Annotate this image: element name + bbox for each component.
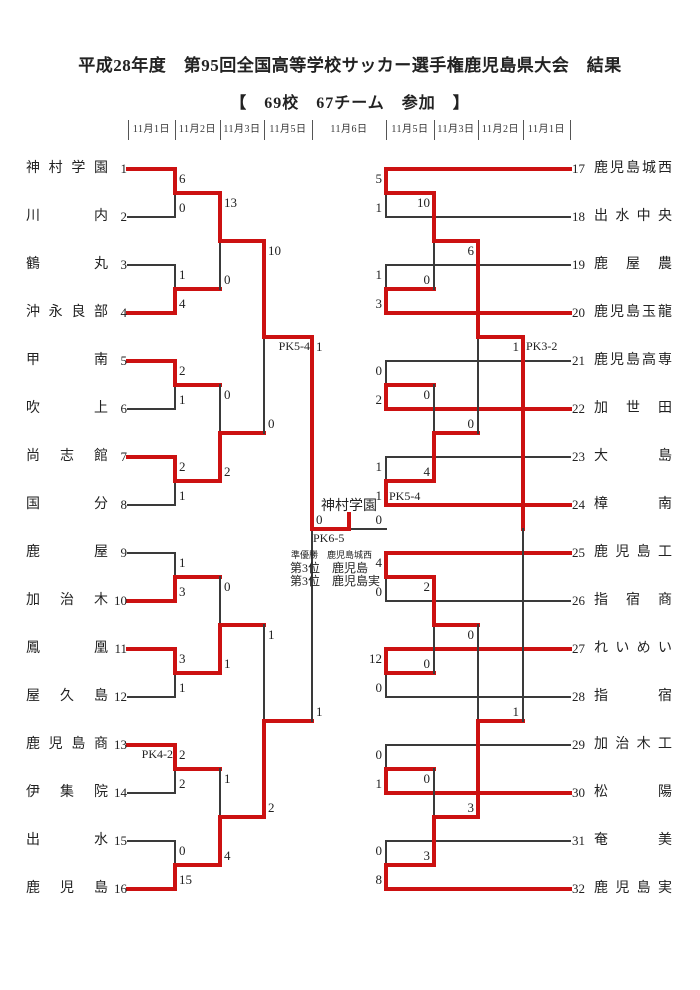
team-name: 鹿児島工 <box>594 544 672 562</box>
score-label: 12 <box>369 651 382 666</box>
team-name: 松陽 <box>594 784 672 802</box>
score-label: 1 <box>376 200 383 215</box>
team-seed: 25 <box>572 545 594 561</box>
score-label: 1 <box>224 656 231 671</box>
team-seed: 1 <box>106 161 127 177</box>
score-label: 1 <box>179 555 186 570</box>
team-name: 沖永良部 <box>26 304 108 322</box>
score-label: 2 <box>179 747 186 762</box>
runner-up-label: 準優勝 鹿児島城西 <box>291 550 372 561</box>
team-name: れいめい <box>594 640 672 658</box>
pk-score-note: PK6-5 <box>313 531 344 545</box>
team-seed: 31 <box>572 833 594 849</box>
team-seed: 21 <box>572 353 594 369</box>
team-name: 指宿商 <box>594 592 672 610</box>
team-name: 大島 <box>594 448 672 466</box>
team-name: 鹿児島玉龍 <box>594 304 672 322</box>
score-label: 3 <box>468 800 475 815</box>
score-label: 0 <box>376 512 383 527</box>
team-name: 鳳凰 <box>26 640 108 658</box>
score-label: 3 <box>179 651 186 666</box>
score-label: 1 <box>316 704 323 719</box>
score-label: 5 <box>376 171 383 186</box>
score-label: 0 <box>179 843 186 858</box>
score-label: 4 <box>179 296 186 311</box>
score-label: 1 <box>513 339 520 354</box>
score-label: 1 <box>179 267 186 282</box>
score-label: 2 <box>179 776 186 791</box>
team-seed: 29 <box>572 737 594 753</box>
team-seed: 8 <box>106 497 127 513</box>
team-seed: 28 <box>572 689 594 705</box>
score-label: 1 <box>268 627 275 642</box>
score-label: 0 <box>268 416 275 431</box>
score-label: 10 <box>417 195 430 210</box>
team-name: 鹿児島高専 <box>594 352 672 370</box>
team-seed: 11 <box>106 641 127 657</box>
score-label: 3 <box>179 584 186 599</box>
pk-score-note: PK4-2 <box>142 747 173 761</box>
score-label: 6 <box>468 243 475 258</box>
score-label: 2 <box>424 579 431 594</box>
score-label: 10 <box>268 243 281 258</box>
tournament-bracket-page: 平成28年度 第95回全国高等学校サッカー選手権鹿児島県大会 結果 【 69校 … <box>0 0 700 990</box>
team-seed: 12 <box>106 689 127 705</box>
score-label: 3 <box>376 296 383 311</box>
score-label: 0 <box>424 656 431 671</box>
score-label: 2 <box>179 459 186 474</box>
pk-score-note: PK3-2 <box>526 339 557 353</box>
score-label: 1 <box>376 776 383 791</box>
team-seed: 18 <box>572 209 594 225</box>
team-seed: 23 <box>572 449 594 465</box>
score-label: 13 <box>224 195 237 210</box>
team-name: 加世田 <box>594 400 672 418</box>
team-name: 神村学園 <box>26 160 108 178</box>
score-label: 1 <box>179 488 186 503</box>
score-label: 4 <box>376 555 383 570</box>
score-label: 4 <box>424 464 431 479</box>
team-name: 鶴丸 <box>26 256 108 274</box>
team-seed: 14 <box>106 785 127 801</box>
team-name: 樟南 <box>594 496 672 514</box>
score-label: 0 <box>224 579 231 594</box>
score-label: 1 <box>179 392 186 407</box>
team-name: 甲南 <box>26 352 108 370</box>
team-name: 加治木工 <box>594 736 672 754</box>
team-name: 加治木 <box>26 592 108 610</box>
score-label: 0 <box>376 843 383 858</box>
score-label: 0 <box>224 387 231 402</box>
team-seed: 19 <box>572 257 594 273</box>
score-label: 0 <box>424 272 431 287</box>
score-label: 0 <box>424 387 431 402</box>
team-name: 鹿児島城西 <box>594 160 672 178</box>
score-label: 6 <box>179 171 186 186</box>
team-seed: 24 <box>572 497 594 513</box>
score-label: 0 <box>424 771 431 786</box>
score-label: 1 <box>224 771 231 786</box>
team-name: 出水中央 <box>594 208 672 226</box>
team-name: 尚志館 <box>26 448 108 466</box>
team-seed: 32 <box>572 881 594 897</box>
score-label: 1 <box>179 680 186 695</box>
team-seed: 13 <box>106 737 127 753</box>
score-label: 1 <box>376 459 383 474</box>
score-label: 0 <box>376 747 383 762</box>
score-label: 3 <box>424 848 431 863</box>
team-name: 屋久島 <box>26 688 108 706</box>
team-seed: 3 <box>106 257 127 273</box>
team-seed: 9 <box>106 545 127 561</box>
score-label: 1 <box>513 704 520 719</box>
team-seed: 7 <box>106 449 127 465</box>
score-label: 0 <box>376 680 383 695</box>
team-seed: 16 <box>106 881 127 897</box>
pk-score-note: PK5-4 <box>279 339 310 353</box>
score-label: 0 <box>376 363 383 378</box>
score-label: 2 <box>376 392 383 407</box>
team-name: 国分 <box>26 496 108 514</box>
score-label: 0 <box>179 200 186 215</box>
team-seed: 2 <box>106 209 127 225</box>
team-seed: 4 <box>106 305 127 321</box>
team-seed: 20 <box>572 305 594 321</box>
team-seed: 15 <box>106 833 127 849</box>
champion-label: 神村学園 <box>289 499 409 514</box>
team-name: 鹿児島実 <box>594 880 672 898</box>
score-label: 4 <box>224 848 231 863</box>
score-label: 2 <box>268 800 275 815</box>
team-seed: 30 <box>572 785 594 801</box>
team-name: 川内 <box>26 208 108 226</box>
team-name: 鹿屋農 <box>594 256 672 274</box>
score-label: 0 <box>468 627 475 642</box>
team-seed: 22 <box>572 401 594 417</box>
score-label: 15 <box>179 872 192 887</box>
team-seed: 5 <box>106 353 127 369</box>
score-label: 1 <box>316 339 323 354</box>
score-label: 2 <box>179 363 186 378</box>
team-name: 鹿屋 <box>26 544 108 562</box>
team-name: 奄美 <box>594 832 672 850</box>
team-name: 指宿 <box>594 688 672 706</box>
score-label: 8 <box>376 872 383 887</box>
team-seed: 6 <box>106 401 127 417</box>
team-name: 鹿児島商 <box>26 736 108 754</box>
team-name: 出水 <box>26 832 108 850</box>
score-label: 2 <box>224 464 231 479</box>
team-seed: 27 <box>572 641 594 657</box>
score-label: 0 <box>316 512 323 527</box>
team-seed: 17 <box>572 161 594 177</box>
team-name: 伊集院 <box>26 784 108 802</box>
team-seed: 10 <box>106 593 127 609</box>
score-label: 0 <box>224 272 231 287</box>
team-name: 吹上 <box>26 400 108 418</box>
score-label: 0 <box>468 416 475 431</box>
team-name: 鹿児島 <box>26 880 108 898</box>
score-label: 1 <box>376 267 383 282</box>
team-seed: 26 <box>572 593 594 609</box>
third-place-label: 第3位 鹿児島実 <box>290 575 380 588</box>
